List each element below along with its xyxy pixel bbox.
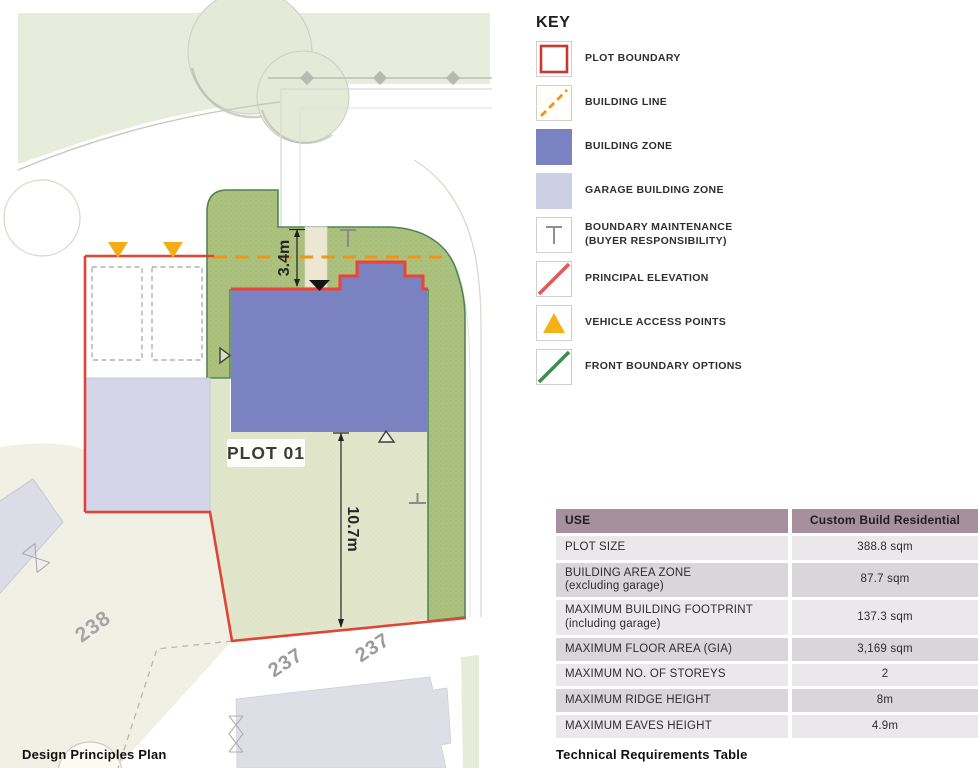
table-row-value: 4.9m: [792, 715, 978, 738]
plot-boundary-swatch-icon: [536, 41, 572, 77]
key-item-front-boundary-options: FRONT BOUNDARY OPTIONS: [536, 349, 816, 385]
building-zone-swatch-icon: [536, 129, 572, 165]
verge-strip: [461, 655, 479, 768]
table-row-value: 3,169 sqm: [792, 638, 978, 661]
table-header-use: USE: [556, 509, 788, 533]
table-row-label: MAXIMUM RIDGE HEIGHT: [556, 689, 788, 712]
key-item-plot-boundary: PLOT BOUNDARY: [536, 41, 816, 77]
key-panel: KEY PLOT BOUNDARY BUILDING LINE BUILDING…: [536, 14, 816, 393]
plot-label: PLOT 01: [227, 443, 305, 463]
key-item-boundary-maintenance: BOUNDARY MAINTENANCE (BUYER RESPONSIBILI…: [536, 217, 816, 253]
key-item-label: BUILDING LINE: [585, 96, 667, 110]
key-item-label: BOUNDARY MAINTENANCE (BUYER RESPONSIBILI…: [585, 221, 733, 248]
key-item-vehicle-access-points: VEHICLE ACCESS POINTS: [536, 305, 816, 341]
parking-bay: [152, 267, 202, 360]
principal-elevation-swatch-icon: [536, 261, 572, 297]
table-row-label: MAXIMUM NO. OF STOREYS: [556, 664, 788, 686]
key-item-label: VEHICLE ACCESS POINTS: [585, 316, 726, 330]
plan-caption: Design Principles Plan: [22, 747, 167, 762]
table-row-label: MAXIMUM BUILDING FOOTPRINT (including ga…: [556, 600, 788, 635]
key-item-building-zone: BUILDING ZONE: [536, 129, 816, 165]
technical-requirements-table: USE Custom Build Residential PLOT SIZE 3…: [556, 509, 978, 738]
table-header-value: Custom Build Residential: [792, 509, 978, 533]
table-caption: Technical Requirements Table: [556, 747, 748, 762]
key-item-label: PLOT BOUNDARY: [585, 52, 681, 66]
vehicle-access-swatch-icon: [536, 305, 572, 341]
plan-drawing: 3.4m 10.7m PLOT 01 238 237 237: [0, 0, 520, 768]
parking-bay: [92, 267, 142, 360]
boundary-maintenance-swatch-icon: [536, 217, 572, 253]
table-row-label: PLOT SIZE: [556, 536, 788, 560]
table-row-label: MAXIMUM EAVES HEIGHT: [556, 715, 788, 738]
garage-building-zone: [85, 378, 210, 513]
key-title: KEY: [536, 14, 816, 32]
table-row-value: 137.3 sqm: [792, 600, 978, 635]
table-row-value: 8m: [792, 689, 978, 712]
table-row-value: 87.7 sqm: [792, 563, 978, 597]
table-row-value: 2: [792, 664, 978, 686]
design-principles-plan: 3.4m 10.7m PLOT 01 238 237 237: [0, 0, 520, 768]
dimension-label: 3.4m: [276, 240, 293, 276]
tree-outline: [4, 180, 80, 256]
tree-canopy: [257, 51, 349, 143]
key-item-label: BUILDING ZONE: [585, 140, 672, 154]
table-row-value: 388.8 sqm: [792, 536, 978, 560]
key-item-label: FRONT BOUNDARY OPTIONS: [585, 360, 742, 374]
table-row-label: BUILDING AREA ZONE (excluding garage): [556, 563, 788, 597]
key-item-principal-elevation: PRINCIPAL ELEVATION: [536, 261, 816, 297]
key-item-building-line: BUILDING LINE: [536, 85, 816, 121]
front-boundary-swatch-icon: [536, 349, 572, 385]
building-line-swatch-icon: [536, 85, 572, 121]
table-row-label: MAXIMUM FLOOR AREA (GIA): [556, 638, 788, 661]
key-item-label: GARAGE BUILDING ZONE: [585, 184, 724, 198]
key-item-label: PRINCIPAL ELEVATION: [585, 272, 709, 286]
dimension-label: 10.7m: [344, 506, 361, 551]
garage-zone-swatch-icon: [536, 173, 572, 209]
key-item-garage-building-zone: GARAGE BUILDING ZONE: [536, 173, 816, 209]
